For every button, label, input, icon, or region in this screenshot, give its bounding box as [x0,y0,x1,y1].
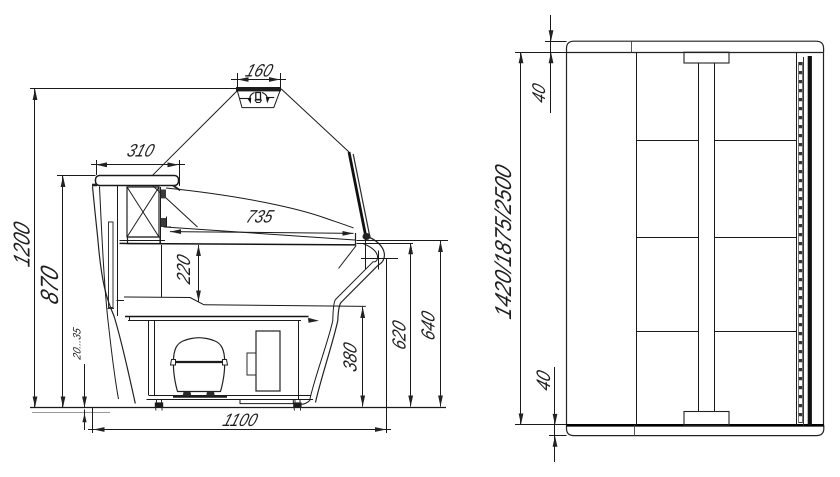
svg-text:1200: 1200 [8,218,35,269]
svg-text:1100: 1100 [220,409,261,430]
svg-text:20...35: 20...35 [71,326,83,362]
svg-text:1420/1875/2500: 1420/1875/2500 [491,161,517,322]
